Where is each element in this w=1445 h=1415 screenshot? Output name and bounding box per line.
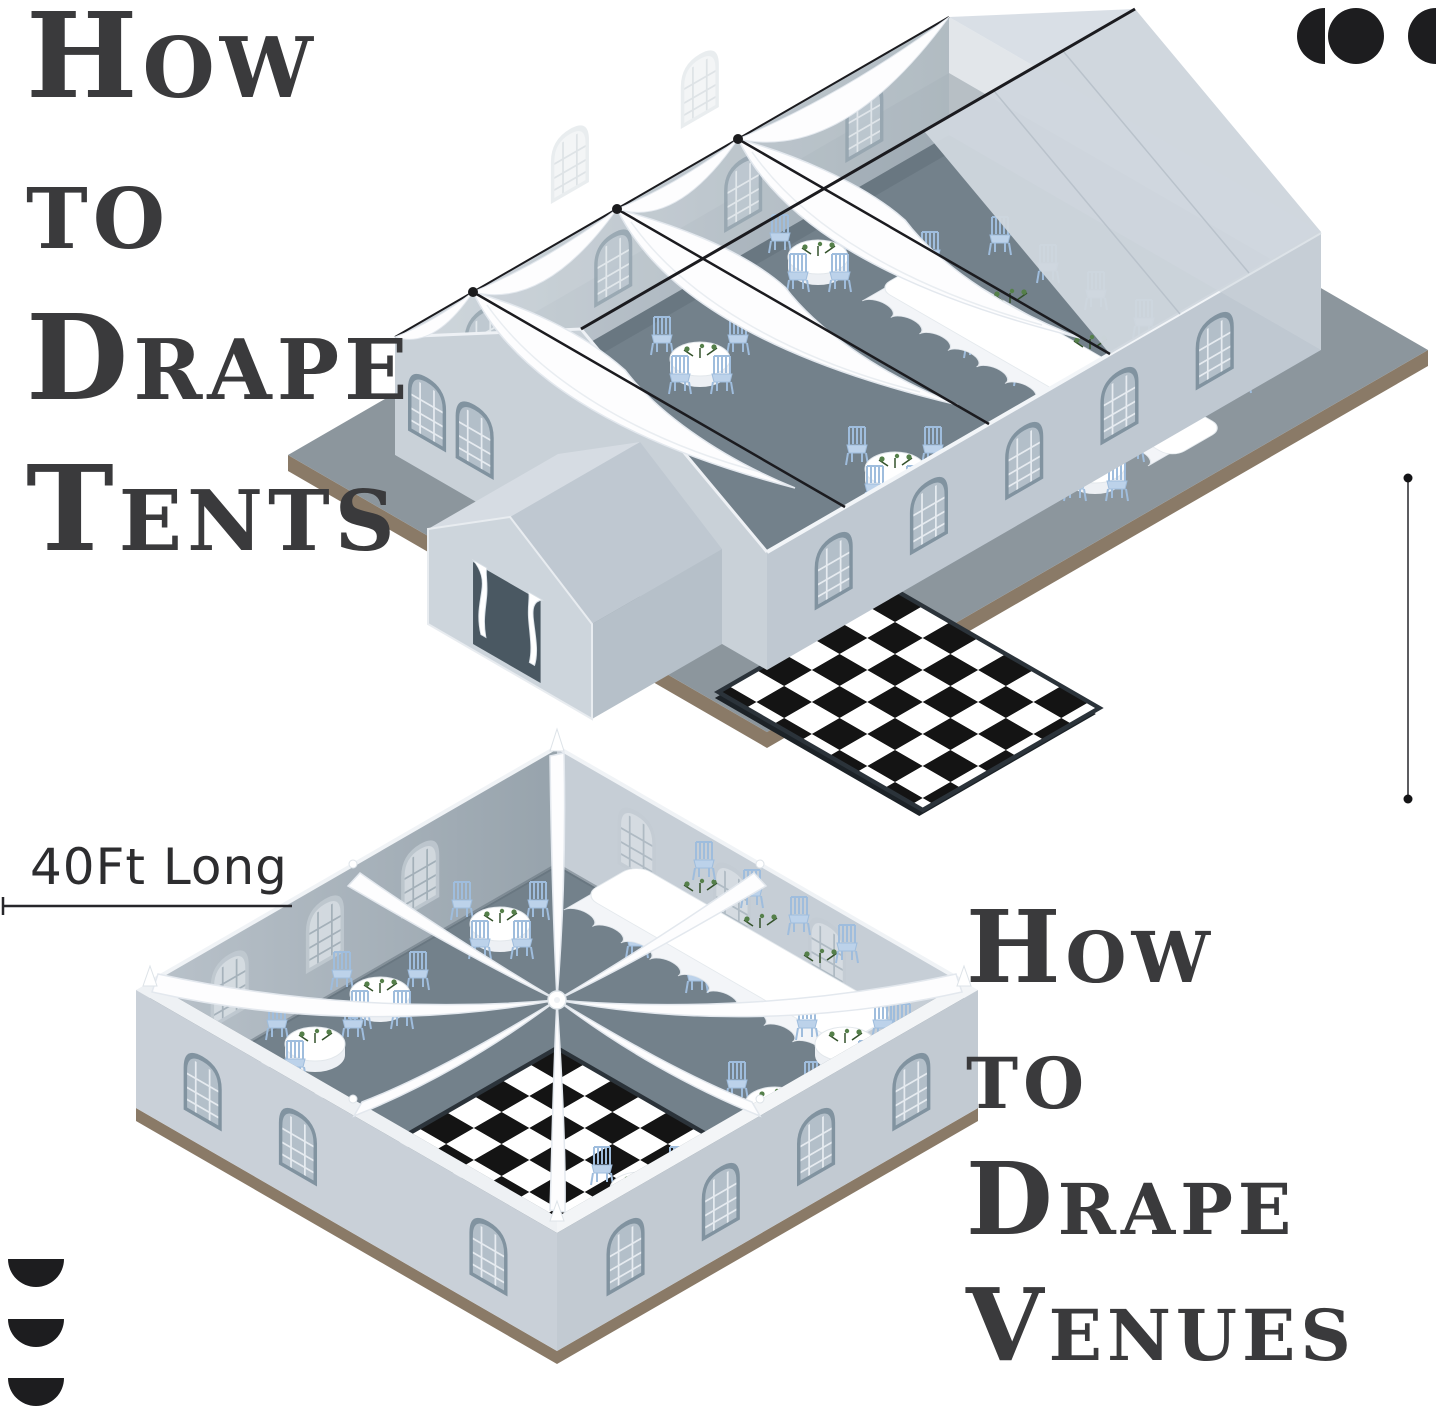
headline-top: How to Drape Tents (26, 0, 412, 584)
half-disc-down-icon (8, 1319, 64, 1347)
headline-top-line-3: Drape (26, 282, 412, 433)
length-dimension-line (2, 897, 292, 915)
headline-bottom-line-1: How (966, 884, 1356, 1010)
half-disc-icon (1408, 8, 1436, 64)
headline-top-line-4: Tents (26, 433, 412, 584)
brand-icon-top-right (1297, 8, 1436, 64)
headline-bottom-line-2: to (966, 1010, 1356, 1136)
venue-drape-hub (548, 991, 566, 1009)
poster-canvas: How to Drape Tents How to Drape Venues 4… (0, 0, 1445, 1415)
height-dimension-line (1404, 474, 1413, 804)
headline-bottom-line-3: Drape (966, 1136, 1356, 1262)
length-label: 40Ft Long (30, 838, 288, 896)
headline-bottom: How to Drape Venues (966, 884, 1356, 1388)
venue-illustration (136, 729, 978, 1364)
headline-top-line-1: How (26, 0, 412, 131)
circle-icon (1328, 8, 1384, 64)
half-disc-icon (1297, 8, 1325, 64)
headline-top-line-2: to (26, 131, 412, 282)
tent-illustration (288, 9, 1428, 816)
half-disc-down-icon (8, 1378, 64, 1406)
brand-icon-bottom-left (8, 1259, 64, 1406)
half-disc-down-icon (8, 1259, 64, 1287)
headline-bottom-line-4: Venues (966, 1262, 1356, 1388)
